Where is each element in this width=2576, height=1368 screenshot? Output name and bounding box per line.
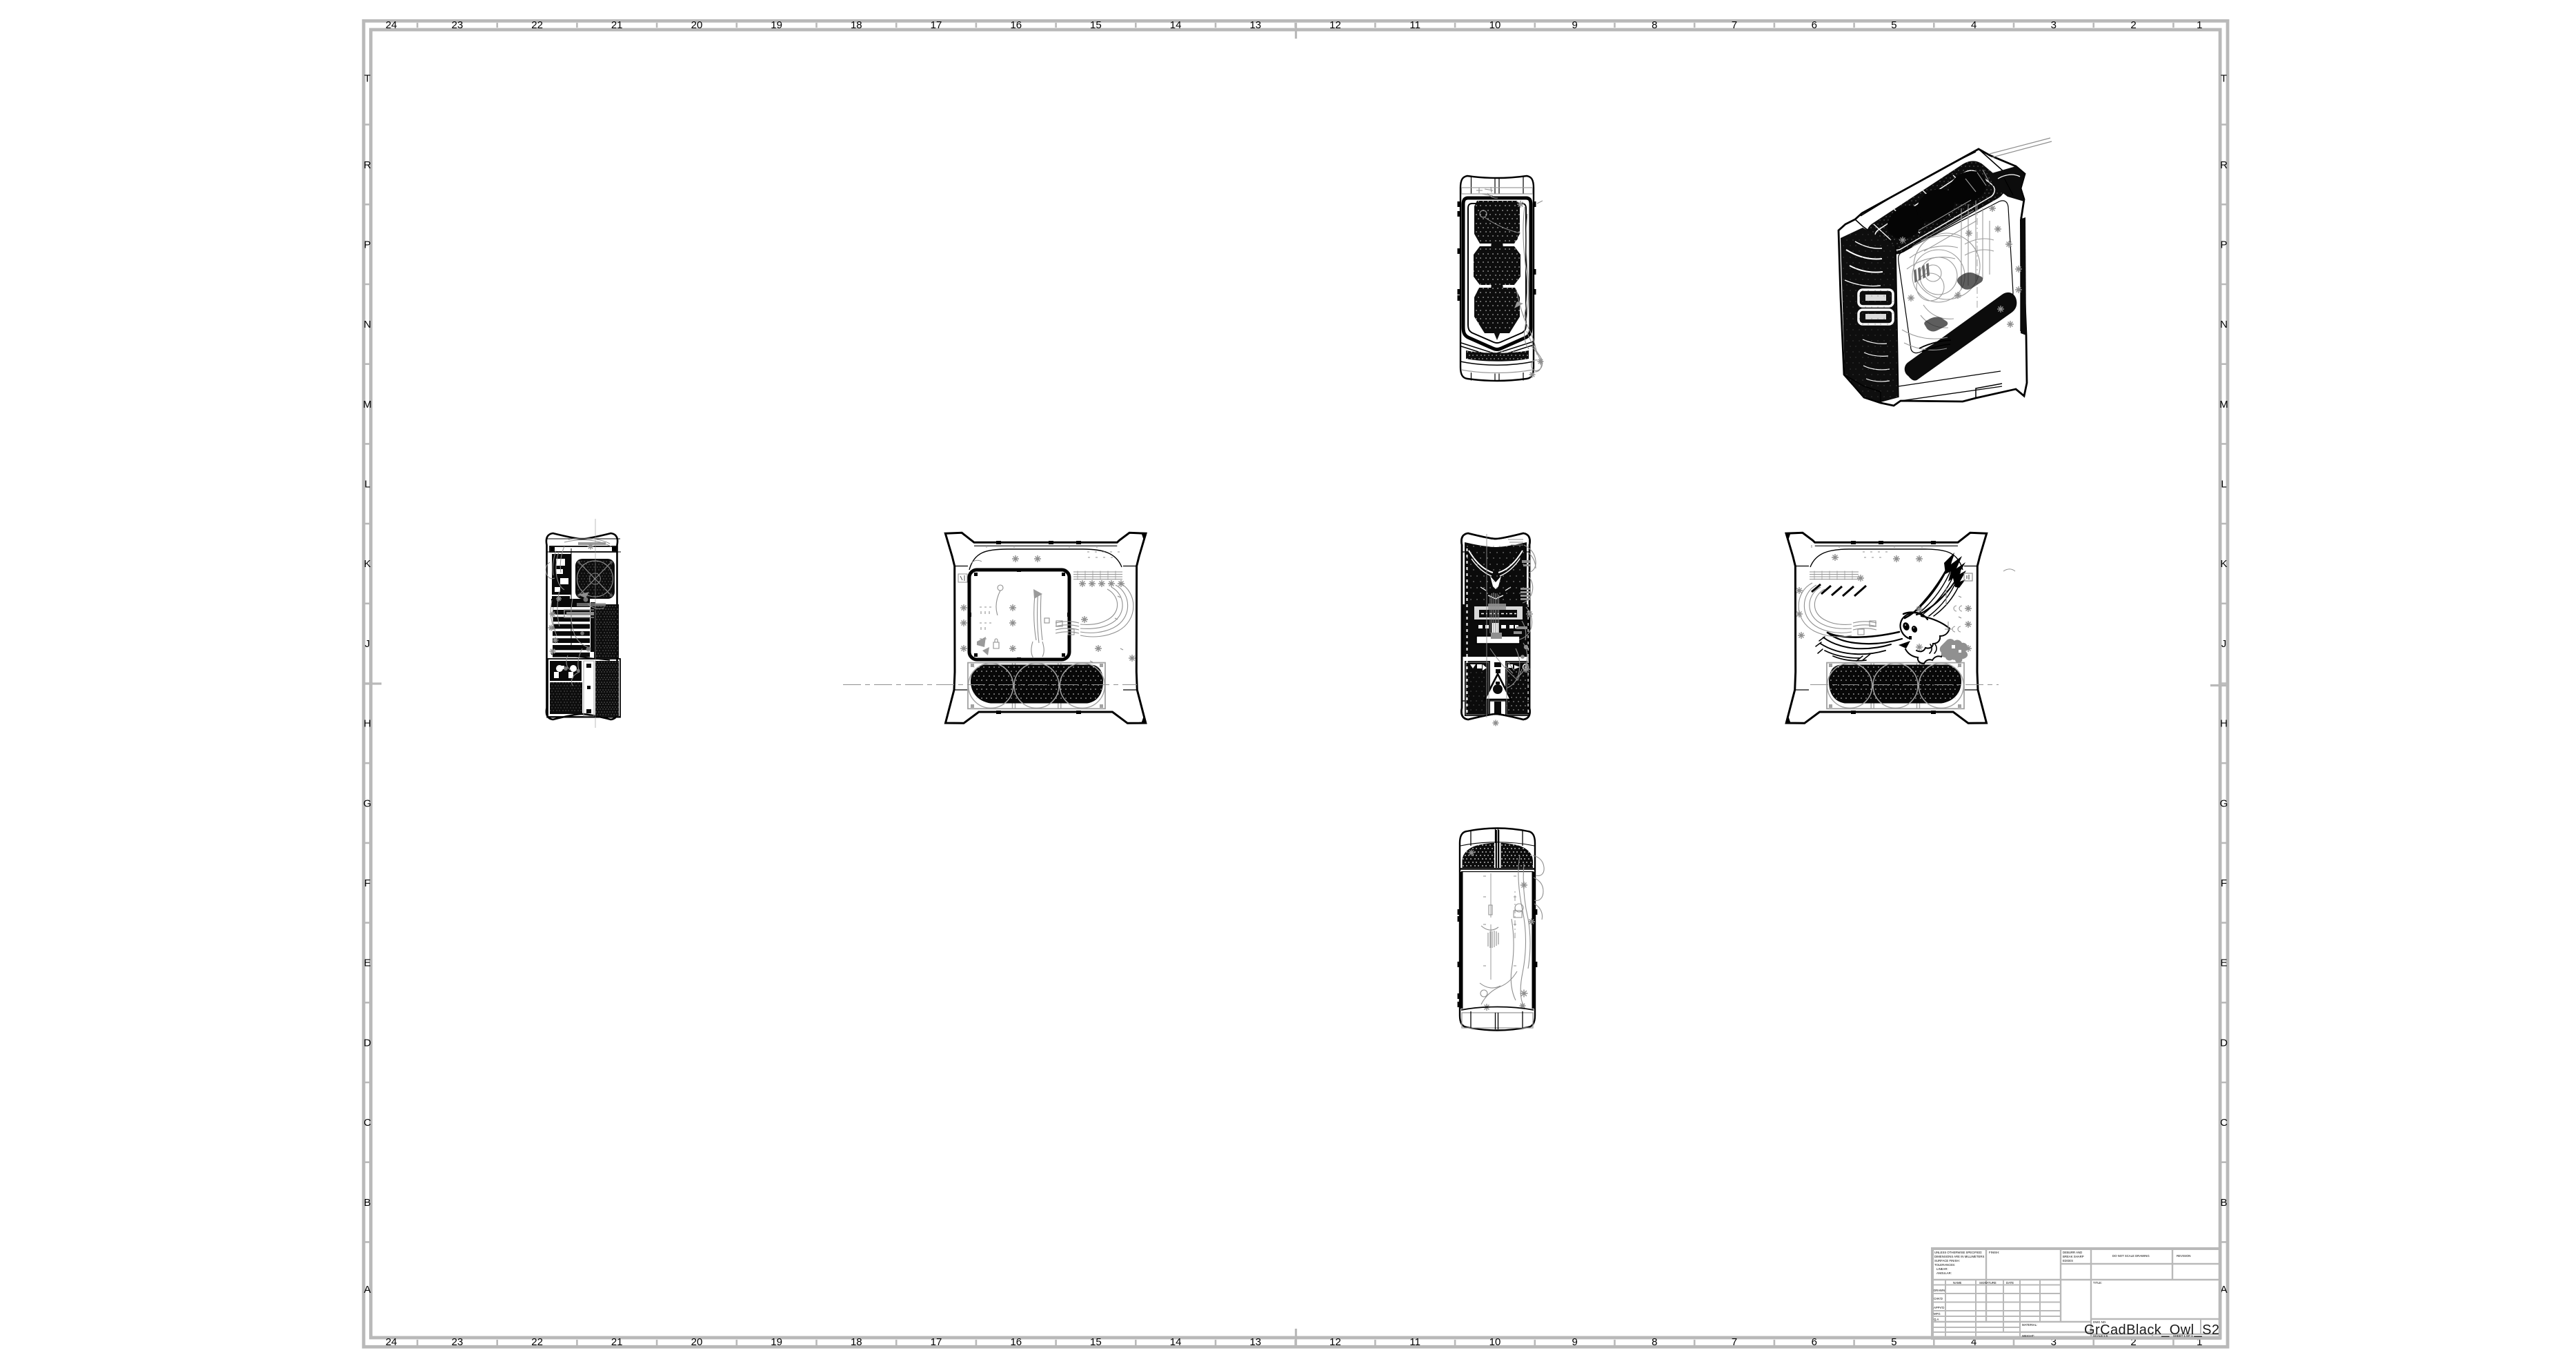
svg-text:DATE: DATE xyxy=(2006,1281,2014,1285)
svg-text:MFG: MFG xyxy=(1934,1312,1941,1316)
svg-text:DIMENSIONS ARE IN MILLIMETERS: DIMENSIONS ARE IN MILLIMETERS xyxy=(1934,1255,1984,1258)
svg-text:REVISION: REVISION xyxy=(2177,1254,2191,1258)
svg-text:LINEAR:: LINEAR: xyxy=(1936,1267,1948,1271)
svg-text:CHK'D: CHK'D xyxy=(1934,1297,1943,1300)
svg-text:SIGNATURE: SIGNATURE xyxy=(1979,1281,1997,1285)
svg-text:NAME: NAME xyxy=(1953,1281,1962,1285)
svg-text:DRAWN: DRAWN xyxy=(1934,1289,1945,1292)
svg-text:TITLE:: TITLE: xyxy=(2093,1281,2102,1285)
svg-text:BREAK SHARP: BREAK SHARP xyxy=(2063,1255,2084,1258)
svg-text:UNLESS OTHERWISE SPECIFIED:: UNLESS OTHERWISE SPECIFIED: xyxy=(1934,1251,1982,1254)
svg-text:APPV'D: APPV'D xyxy=(1934,1306,1944,1309)
svg-text:SURFACE FINISH:: SURFACE FINISH: xyxy=(1934,1259,1960,1262)
svg-text:DO NOT SCALE DRAWING: DO NOT SCALE DRAWING xyxy=(2112,1254,2150,1258)
svg-text:WEIGHT:: WEIGHT: xyxy=(2022,1334,2034,1338)
svg-text:DEBURR AND: DEBURR AND xyxy=(2063,1251,2082,1254)
svg-text:GrCadBlack_Owl_S2: GrCadBlack_Owl_S2 xyxy=(2084,1322,2219,1338)
svg-text:EDGES: EDGES xyxy=(2063,1259,2073,1262)
svg-text:FINISH:: FINISH: xyxy=(1989,1251,1999,1254)
svg-text:TOLERANCES:: TOLERANCES: xyxy=(1934,1263,1955,1267)
svg-text:ANGULAR:: ANGULAR: xyxy=(1936,1271,1952,1275)
svg-text:MATERIAL:: MATERIAL: xyxy=(2022,1323,2037,1327)
svg-text:Q.A: Q.A xyxy=(1934,1318,1939,1321)
